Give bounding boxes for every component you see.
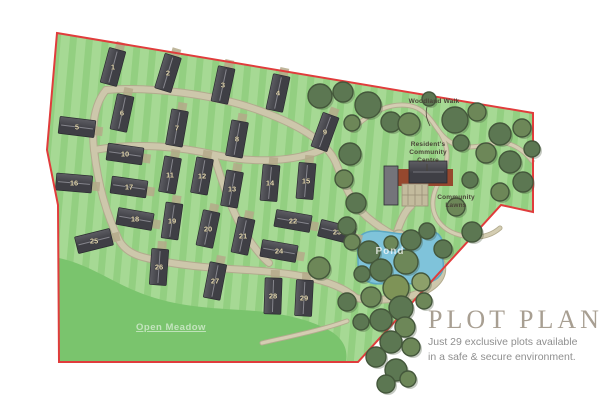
plot-number: 14 bbox=[266, 179, 275, 188]
title-block: PLOT PLAN Just 29 exclusive plots availa… bbox=[428, 305, 574, 365]
community-centre-label-line2: Community bbox=[409, 149, 447, 156]
tree-icon bbox=[346, 193, 366, 213]
community-lawns-label-line2: Lawns bbox=[445, 202, 466, 209]
plan-title: PLOT PLAN bbox=[428, 305, 574, 335]
tree-icon bbox=[434, 240, 452, 258]
plot-number: 9 bbox=[323, 128, 327, 137]
plot-number: 25 bbox=[90, 237, 98, 246]
tree-icon bbox=[354, 266, 370, 282]
tree-icon bbox=[339, 143, 361, 165]
community-centre-label-line3: Centre bbox=[417, 157, 439, 164]
tree-icon bbox=[419, 223, 435, 239]
plot-number: 12 bbox=[198, 172, 206, 181]
plot-number: 2 bbox=[166, 69, 170, 78]
plot-number: 11 bbox=[166, 171, 174, 180]
community-lawns-label-line1: Community bbox=[437, 194, 475, 201]
plot-number: 26 bbox=[155, 263, 163, 272]
tree-icon bbox=[462, 172, 478, 188]
plot-number: 13 bbox=[228, 185, 236, 194]
tree-icon bbox=[491, 183, 509, 201]
tree-icon bbox=[524, 141, 540, 157]
tree-icon bbox=[400, 371, 416, 387]
plot-number: 15 bbox=[302, 177, 310, 186]
pond-label: Pond bbox=[376, 246, 405, 257]
plan-subtitle-line1: Just 29 exclusive plots available bbox=[428, 335, 574, 350]
plot-number: 22 bbox=[289, 217, 297, 226]
plan-subtitle-line2: in a safe & secure environment. bbox=[428, 350, 574, 365]
tree-icon bbox=[476, 143, 496, 163]
plot-number: 6 bbox=[120, 109, 124, 118]
tree-icon bbox=[361, 287, 381, 307]
tree-icon bbox=[366, 347, 386, 367]
tree-icon bbox=[398, 113, 420, 135]
tree-icon bbox=[377, 375, 395, 393]
plot-number: 7 bbox=[175, 124, 179, 133]
community-centre-label-line1: Resident's bbox=[411, 141, 446, 148]
plot-number: 3 bbox=[221, 81, 225, 90]
plot-number: 28 bbox=[269, 292, 277, 301]
tree-icon bbox=[344, 234, 360, 250]
plot-number: 24 bbox=[275, 247, 284, 256]
tree-icon bbox=[442, 107, 468, 133]
tree-icon bbox=[353, 314, 369, 330]
plot-plan-page: 1234567891011121314151617181920212223242… bbox=[0, 0, 600, 403]
tree-icon bbox=[308, 84, 332, 108]
community-structure bbox=[384, 166, 398, 205]
plot-number: 16 bbox=[70, 179, 78, 188]
tree-icon bbox=[335, 170, 353, 188]
tree-icon bbox=[499, 151, 521, 173]
plot-number: 10 bbox=[121, 150, 129, 159]
plot-number: 8 bbox=[235, 135, 239, 144]
plot-number: 1 bbox=[111, 63, 115, 72]
plot-number: 17 bbox=[125, 183, 133, 192]
tree-icon bbox=[308, 257, 330, 279]
tree-icon bbox=[412, 273, 430, 291]
plot-number: 20 bbox=[204, 225, 212, 234]
tree-icon bbox=[489, 123, 511, 145]
plot-number: 27 bbox=[211, 277, 219, 286]
tree-icon bbox=[462, 222, 482, 242]
plot-number: 29 bbox=[300, 294, 308, 303]
plot-number: 5 bbox=[75, 123, 79, 132]
tree-icon bbox=[338, 217, 356, 235]
open-meadow-label: Open Meadow bbox=[136, 322, 206, 333]
tree-icon bbox=[513, 119, 531, 137]
tree-icon bbox=[344, 115, 360, 131]
tree-icon bbox=[333, 82, 353, 102]
woodland-walk-label: Woodland Walk bbox=[409, 98, 460, 105]
tree-icon bbox=[468, 103, 486, 121]
tree-icon bbox=[355, 92, 381, 118]
tree-icon bbox=[402, 338, 420, 356]
plot-number: 19 bbox=[168, 217, 176, 226]
tree-icon bbox=[453, 135, 469, 151]
plot-number: 21 bbox=[239, 232, 247, 241]
tree-icon bbox=[370, 309, 392, 331]
plot-number: 18 bbox=[131, 215, 139, 224]
tree-icon bbox=[338, 293, 356, 311]
tree-icon bbox=[389, 296, 413, 320]
tree-icon bbox=[513, 172, 533, 192]
